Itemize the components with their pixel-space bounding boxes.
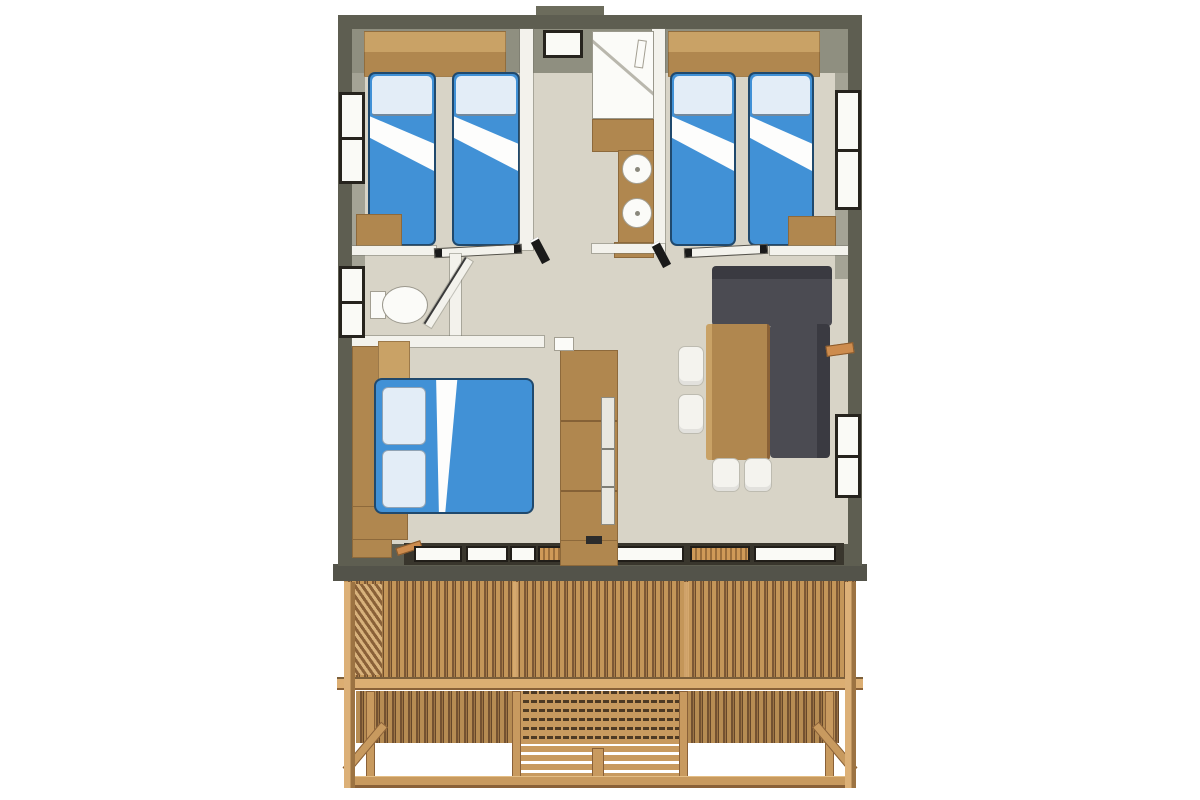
stair-stringer-left (512, 691, 521, 780)
window-pane (838, 458, 858, 496)
bathroom-counter (592, 119, 654, 152)
duvet-fold (454, 112, 518, 184)
kitchen-wall-fitting (554, 337, 574, 351)
deck-board-threshold (690, 546, 750, 562)
dining-chair-3 (712, 458, 740, 492)
bay-window-pane (510, 546, 536, 562)
dining-table (706, 324, 770, 460)
deck-fence-post-right (684, 582, 689, 677)
pillow (456, 76, 516, 116)
double-bed (374, 378, 534, 514)
deck-handrail (337, 677, 863, 690)
overhead-storage-right (668, 31, 820, 77)
washbasin-1 (622, 154, 652, 184)
partition-left-bedroom (520, 29, 533, 250)
bay-window-pane (754, 546, 836, 562)
window-wc (339, 266, 365, 338)
lodge-floorplan-scene (0, 0, 1200, 800)
deck-lower-slats-right (687, 691, 839, 743)
corner-sofa-side (770, 324, 830, 458)
pillow (382, 387, 426, 445)
window-pane (342, 95, 362, 137)
bedside-bench (378, 341, 410, 381)
shower-fitting (634, 40, 647, 69)
deck-fence-post-left (513, 582, 518, 677)
duvet-fold (370, 112, 434, 184)
window-pane (342, 140, 362, 182)
duvet-fold (672, 112, 734, 184)
duvet-fold (426, 380, 472, 512)
bay-window-pane (612, 546, 684, 562)
appliance-divider (602, 486, 614, 488)
window-right-bedroom (835, 90, 861, 210)
pillow (372, 76, 432, 116)
bay-window-pane (414, 546, 462, 562)
entry-door-handle (586, 536, 602, 544)
ground-beam (344, 776, 856, 788)
kitchen-unit (560, 350, 618, 562)
pillow (674, 76, 732, 116)
stilt-post-right (845, 582, 856, 788)
single-bed-3 (670, 72, 736, 246)
corridor-window (543, 30, 583, 58)
corner-sofa-top (712, 266, 832, 326)
dining-chair-4 (744, 458, 772, 492)
single-bed-2 (452, 72, 520, 246)
duvet-fold (750, 112, 812, 184)
window-pane (838, 93, 858, 149)
toilet (382, 286, 428, 324)
window-pane (838, 152, 858, 208)
stilt-post-left (344, 582, 355, 788)
pillow (752, 76, 810, 116)
dining-chair-2 (678, 394, 704, 434)
deck-board-threshold (538, 546, 562, 562)
hall-wall-segment-left (352, 246, 436, 255)
hall-wall-segment-right (770, 246, 848, 255)
window-pane (838, 417, 858, 455)
shower-cabin (592, 31, 654, 119)
appliance-front (601, 397, 615, 525)
stair-stringer-right (679, 691, 688, 780)
deck-fascia (333, 564, 867, 581)
deck-lattice-panel (513, 691, 679, 744)
washbasin-2 (622, 198, 652, 228)
pillow (382, 450, 426, 508)
window-pane (546, 33, 580, 55)
window-pane (342, 269, 362, 301)
deck-slatted-fence (344, 581, 856, 677)
window-living-room (835, 414, 861, 498)
overhead-storage-left (364, 31, 506, 77)
bay-window-pane (466, 546, 508, 562)
appliance-divider (602, 448, 614, 450)
dining-chair-1 (678, 346, 704, 386)
window-pane (342, 304, 362, 336)
window-left-bedroom (339, 92, 365, 184)
